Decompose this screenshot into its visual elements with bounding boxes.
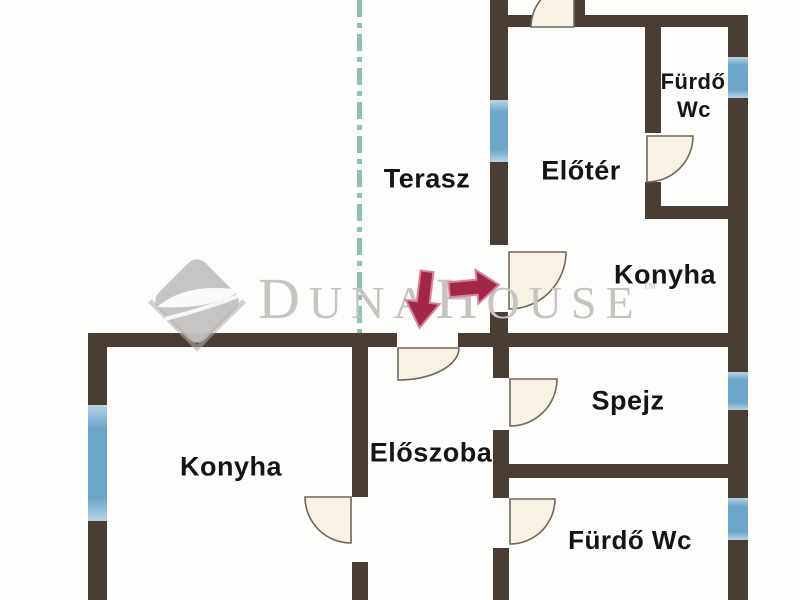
room-label-furdo-wc-top-2: Wc: [677, 99, 711, 121]
room-label-terasz: Terasz: [384, 166, 471, 193]
window: [728, 57, 748, 98]
wall: [728, 15, 748, 57]
door-arc: [531, 0, 574, 27]
wall: [728, 540, 748, 600]
wall: [507, 15, 532, 27]
wall: [728, 98, 748, 372]
window: [728, 498, 748, 540]
room-label-eloszoba: Előszoba: [370, 440, 493, 467]
door-arc: [398, 348, 459, 380]
room-label-eloter: Előtér: [541, 158, 621, 185]
wall: [88, 347, 107, 405]
wall: [352, 347, 368, 497]
wall: [88, 521, 107, 600]
wall: [645, 27, 661, 133]
window: [728, 372, 748, 410]
door-arc: [305, 497, 351, 543]
window: [490, 100, 508, 162]
wall: [509, 464, 728, 478]
floor-plan: DUNAHOUSE™ Terasz Előtér Fürdő Wc Konyha…: [0, 0, 800, 600]
wall: [458, 333, 748, 347]
dunahouse-watermark-text: DUNAHOUSE™: [258, 266, 657, 331]
window: [88, 405, 107, 521]
door-arc: [510, 499, 555, 544]
room-label-konyha-right: Konyha: [614, 262, 716, 289]
wall: [490, 0, 508, 100]
wall: [490, 162, 508, 245]
door-arc: [647, 136, 693, 182]
room-label-furdo-wc-top-1: Fürdő: [661, 71, 726, 93]
door-arc: [510, 379, 557, 426]
room-label-konyha-left: Konyha: [180, 454, 282, 481]
wall: [88, 333, 397, 347]
wall: [493, 347, 509, 378]
wall: [728, 410, 748, 498]
wall: [573, 15, 748, 27]
room-label-furdo-wc-bottom: Fürdő Wc: [568, 527, 692, 553]
wall: [352, 562, 368, 600]
wall: [493, 548, 509, 600]
wall: [493, 430, 509, 498]
room-label-spejz: Spejz: [591, 388, 664, 415]
